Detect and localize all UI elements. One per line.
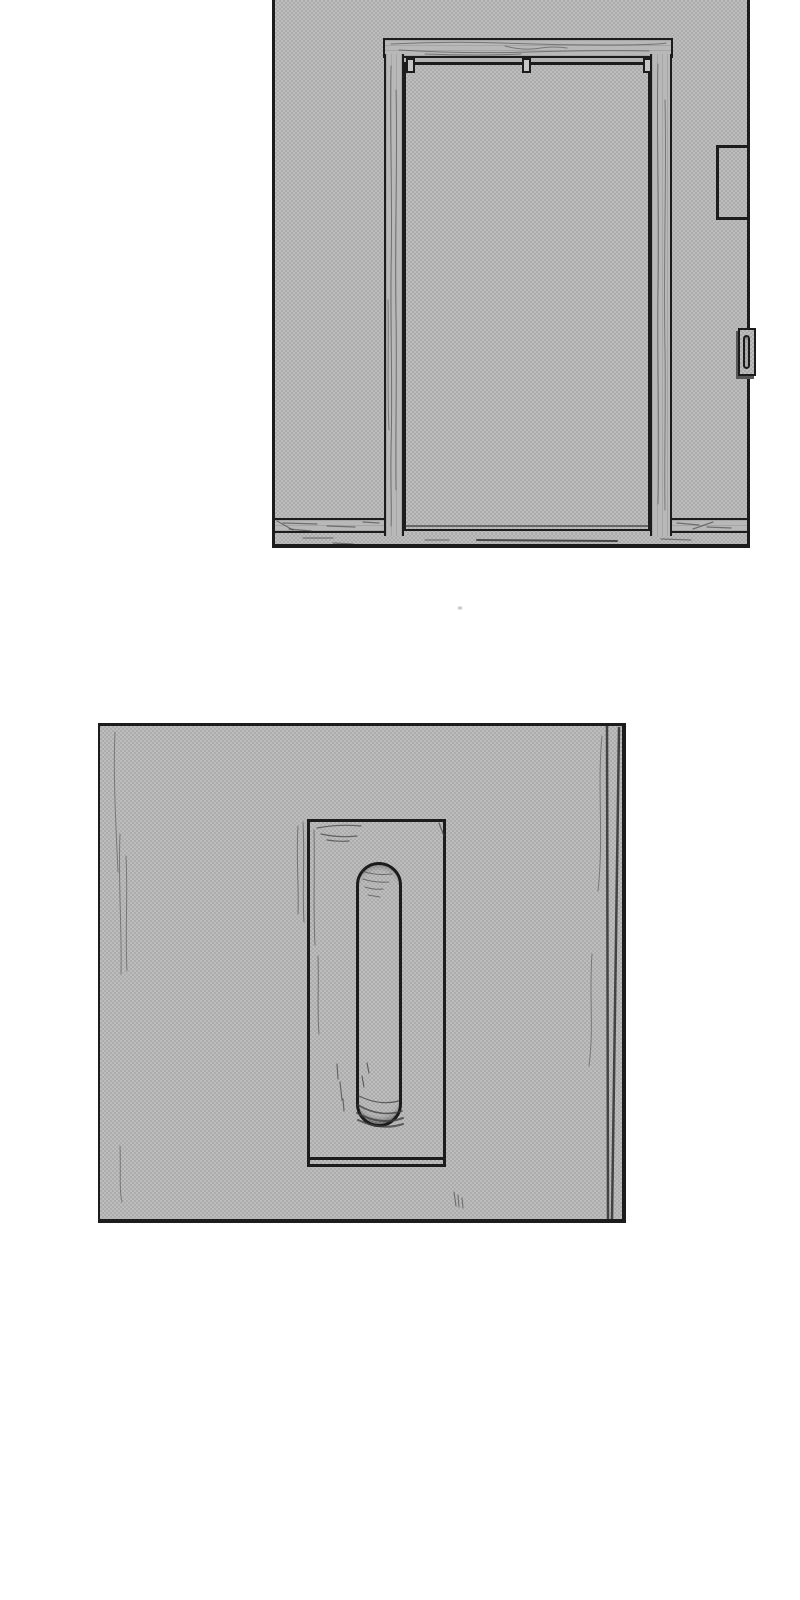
baseboard-right: [672, 518, 747, 533]
door-handle-slot: [743, 335, 750, 369]
handle-plate: [307, 819, 446, 1167]
frame-lintel: [383, 38, 673, 58]
sliding-door: [404, 63, 650, 531]
floor-strip: [275, 533, 747, 544]
comic-page: { "scene": { "kind": "manga page, two bo…: [0, 0, 800, 1600]
door-hanger-center: [522, 58, 531, 73]
stray-ink-speck: [456, 605, 464, 611]
handle-plate-face: [307, 819, 446, 1160]
door-hanger-left: [406, 58, 415, 73]
door-handle-plate: [738, 328, 756, 376]
baseboard-left: [275, 518, 384, 533]
handle-plate-bottom-edge: [307, 1160, 446, 1167]
frame-post-right: [650, 54, 672, 536]
handle-recessed-slot: [356, 862, 402, 1127]
panel-handle-closeup: [98, 723, 626, 1223]
frame-post-left: [384, 54, 404, 536]
panel-sliding-door: [272, 0, 750, 548]
wall-switch-box: [716, 145, 747, 220]
